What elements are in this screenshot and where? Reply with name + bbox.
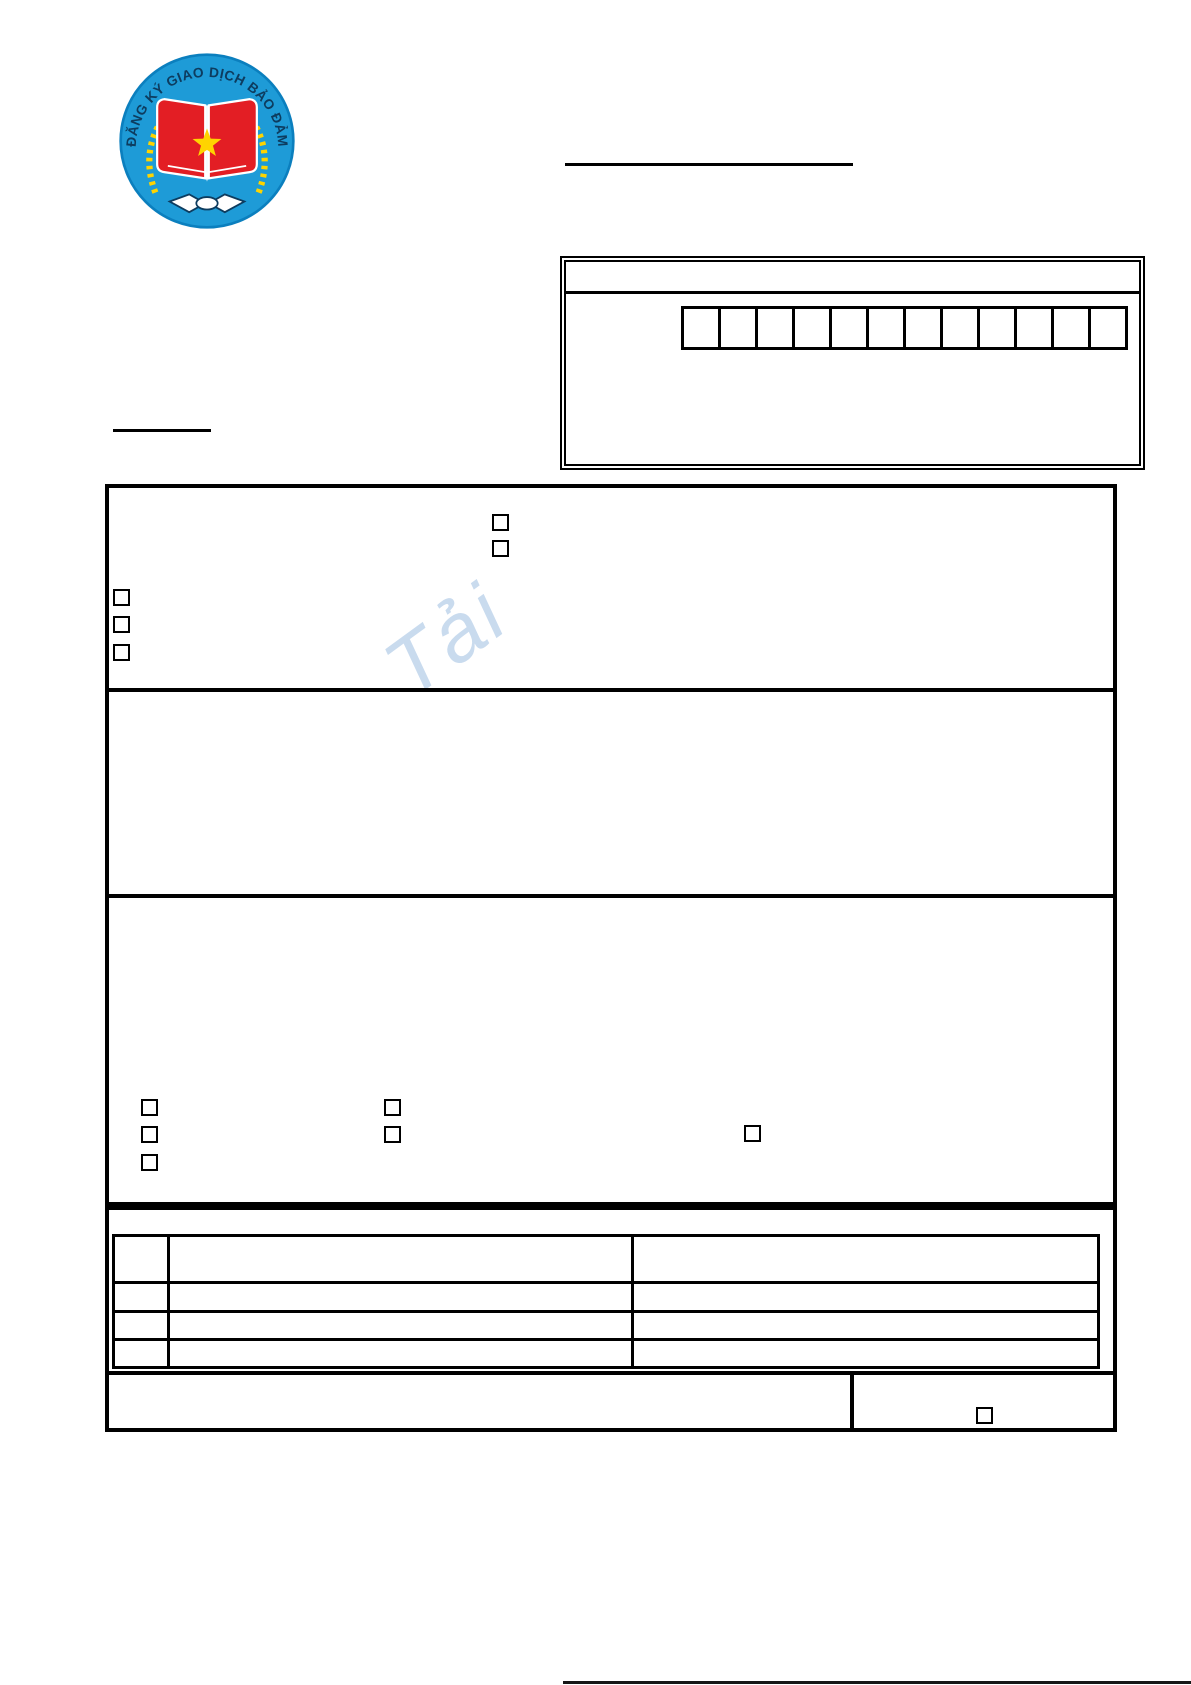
section3-col2-checkbox-2[interactable] — [384, 1126, 401, 1143]
section1-left-checkbox-2[interactable] — [113, 616, 130, 633]
table-cell[interactable] — [114, 1236, 169, 1283]
table-cell[interactable] — [169, 1340, 633, 1368]
section3-col1-checkbox-3[interactable] — [141, 1154, 158, 1171]
code-cell[interactable] — [940, 306, 980, 350]
bottom-table — [112, 1234, 1100, 1369]
section1-center-checkbox-2[interactable] — [492, 540, 509, 557]
table-cell[interactable] — [114, 1340, 169, 1368]
section3-col1-checkbox-1[interactable] — [141, 1099, 158, 1116]
table-cell[interactable] — [169, 1283, 633, 1312]
table-cell[interactable] — [169, 1312, 633, 1340]
form-section-2 — [105, 688, 1117, 898]
code-cell[interactable] — [866, 306, 906, 350]
form-section-3 — [105, 894, 1117, 1206]
code-cell[interactable] — [1088, 306, 1128, 350]
code-cell[interactable] — [903, 306, 943, 350]
table-cell[interactable] — [114, 1283, 169, 1312]
footer-checkbox[interactable] — [976, 1407, 993, 1424]
code-cell[interactable] — [792, 306, 832, 350]
table-row — [114, 1340, 1099, 1368]
title-underline — [565, 163, 853, 166]
code-cell[interactable] — [1051, 306, 1091, 350]
section3-col3-checkbox-1[interactable] — [744, 1125, 761, 1142]
table-cell[interactable] — [114, 1312, 169, 1340]
page-bottom-rule — [563, 1681, 1191, 1684]
table-row — [114, 1236, 1099, 1283]
code-cell[interactable] — [1014, 306, 1054, 350]
code-cell[interactable] — [829, 306, 869, 350]
book-star-icon — [157, 99, 257, 178]
code-box-header-divider — [566, 291, 1139, 294]
footer-box — [105, 1371, 1117, 1432]
form-page: ĐĂNG KÝ GIAO DỊCH BẢO ĐẢM — [0, 0, 1191, 1685]
table-row — [114, 1283, 1099, 1312]
code-cell[interactable] — [977, 306, 1017, 350]
code-cells — [681, 306, 1128, 350]
section1-center-checkbox-1[interactable] — [492, 514, 509, 531]
form-section-1 — [105, 484, 1117, 692]
table-row — [114, 1312, 1099, 1340]
registry-code-box — [560, 256, 1145, 470]
table-cell[interactable] — [633, 1236, 1099, 1283]
table-cell[interactable] — [169, 1236, 633, 1283]
left-short-underline — [113, 429, 211, 432]
table-cell[interactable] — [633, 1312, 1099, 1340]
code-cell[interactable] — [681, 306, 721, 350]
footer-box-divider — [850, 1375, 854, 1428]
code-cell[interactable] — [718, 306, 758, 350]
registry-emblem-logo: ĐĂNG KÝ GIAO DỊCH BẢO ĐẢM — [118, 52, 296, 230]
section1-left-checkbox-3[interactable] — [113, 644, 130, 661]
code-cell[interactable] — [755, 306, 795, 350]
section3-col1-checkbox-2[interactable] — [141, 1126, 158, 1143]
section3-col2-checkbox-1[interactable] — [384, 1099, 401, 1116]
registry-code-box-inner — [564, 260, 1141, 466]
section1-left-checkbox-1[interactable] — [113, 589, 130, 606]
table-cell[interactable] — [633, 1283, 1099, 1312]
table-cell[interactable] — [633, 1340, 1099, 1368]
